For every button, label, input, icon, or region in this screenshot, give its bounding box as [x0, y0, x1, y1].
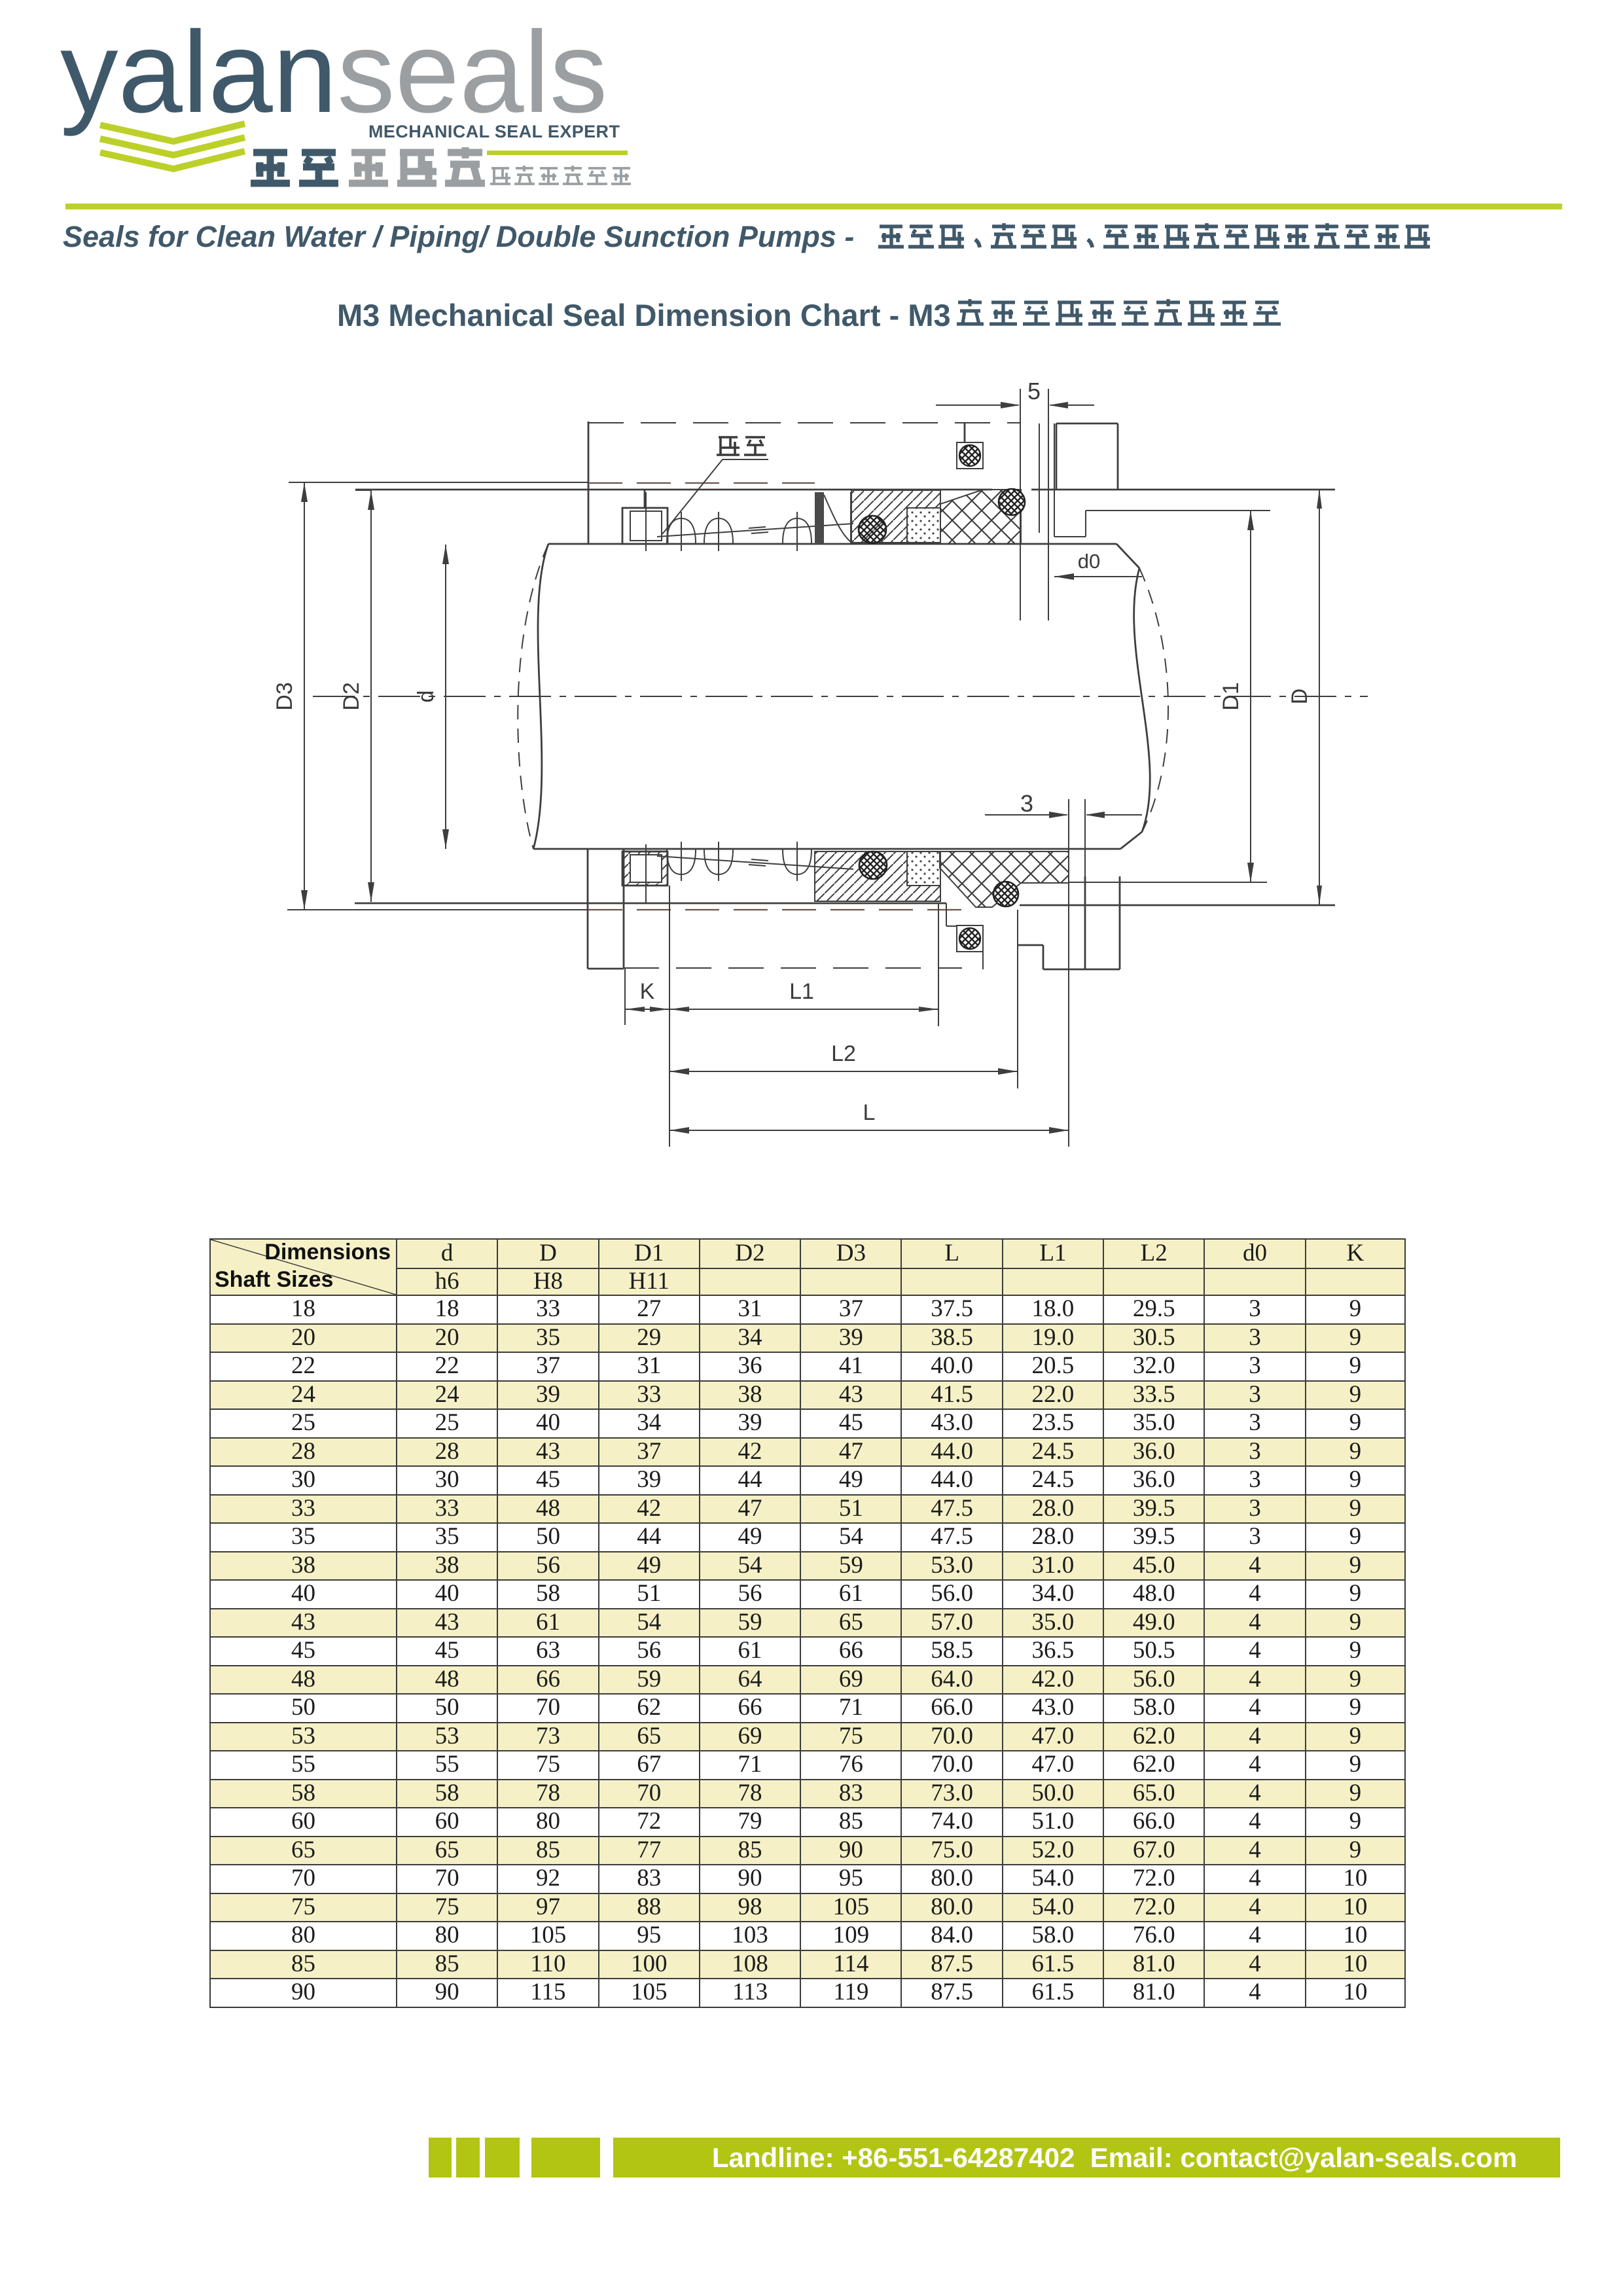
svg-text:D: D [1287, 689, 1312, 705]
svg-text:d0: d0 [1078, 550, 1100, 573]
svg-text:3: 3 [1020, 790, 1033, 817]
svg-text:D3: D3 [272, 682, 297, 710]
svg-text:D1: D1 [1219, 682, 1243, 710]
svg-text:L2: L2 [831, 1041, 856, 1066]
svg-text:L1: L1 [789, 979, 814, 1004]
svg-text:d: d [414, 691, 438, 703]
svg-text:L: L [863, 1100, 876, 1125]
svg-text:K: K [640, 979, 655, 1004]
svg-text:5: 5 [1027, 378, 1041, 404]
svg-text:D2: D2 [339, 682, 364, 710]
